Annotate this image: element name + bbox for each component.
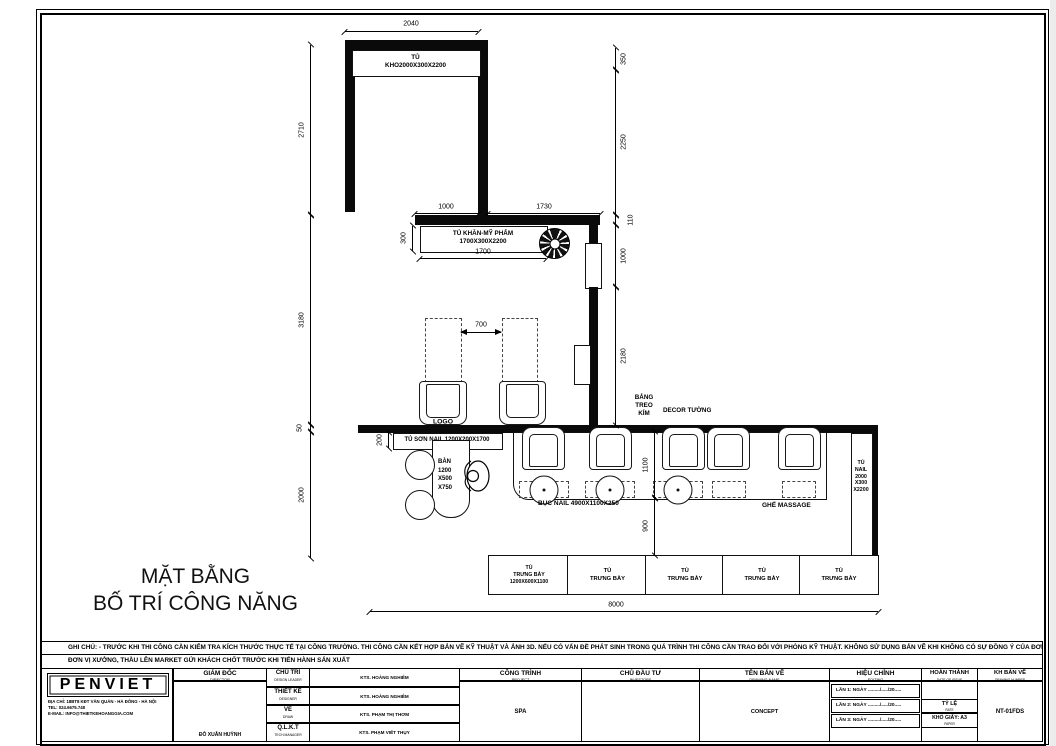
- dimension-line: [345, 31, 478, 32]
- dimension-line: [615, 48, 616, 70]
- display-cabinet: TỦTRƯNG BÀY1200X600X1100: [488, 555, 570, 595]
- role-vi: THIẾT KẾ: [267, 688, 309, 697]
- drawing-name-header: TÊN BẢN VẼ DRAWING NAME: [699, 668, 830, 681]
- investor-header: CHỦ ĐẦU TƯ INVESTORS: [581, 668, 700, 681]
- towel-cosmetic-cabinet-label: TỦ KHĂN-MỸ PHẨM1700X300X2200: [420, 230, 546, 245]
- dim-label: 2710: [299, 122, 306, 138]
- note-line-1: GHI CHÚ: - TRƯỚC KHI THI CÔNG CẦN KIỂM T…: [42, 642, 1042, 655]
- logo-wall-label: LOGO: [433, 419, 453, 426]
- role-name-cell: KTS. HOÀNG NGHIÊM: [309, 668, 460, 687]
- investor-title-vi: CHỦ ĐẦU TƯ: [582, 669, 699, 678]
- stool-seat: [664, 475, 693, 504]
- role-name-cell: KTS. HOÀNG NGHIÊM: [309, 687, 460, 705]
- wall-mid-horizontal: [415, 215, 600, 225]
- client-stool: [405, 450, 435, 480]
- dim-label: 50: [297, 424, 304, 432]
- role-name: KTS. HOÀNG NGHIÊM: [310, 694, 459, 699]
- director-header: GIÁM ĐỐC DIRECTOR: [173, 668, 267, 681]
- pin-board-label: BẢNGTREOKÍM: [629, 394, 659, 418]
- email-line: E-MAIL: INFO@THIETKEHOANGGIA.COM: [48, 711, 170, 717]
- styling-station: [502, 318, 538, 383]
- nail-cabinet-label: TỦNAIL 2000X300 X2200: [849, 460, 873, 494]
- dimension-line: [654, 432, 655, 498]
- dimension-line: [461, 332, 501, 333]
- editing-row-1: LẦN 1: NGÀY ........./...../20.....: [831, 684, 920, 698]
- nail-platform-label: BỤC NAIL 4900X1100X250: [538, 500, 619, 508]
- dim-label: 700: [475, 322, 487, 329]
- dim-label: 1100: [643, 457, 650, 472]
- role-en: DESIGN LEADER: [267, 678, 309, 683]
- company-cell: PENVIET ĐỊA CHỈ: 18BT8 KĐT VĂN QUÁN - HÀ…: [41, 668, 173, 742]
- dim-label: 1730: [536, 204, 552, 211]
- footrest: [712, 481, 746, 498]
- window-opening: [585, 243, 602, 289]
- drawing-sheet: TỦKHO2000X300X2200 TỦ KHĂN-MỸ PHẨM1700X3…: [0, 0, 1056, 746]
- drawing-name-cell: CONCEPT: [699, 681, 830, 742]
- scale-title-vi: TỶ LỆ: [922, 700, 977, 708]
- chair-seat: [596, 434, 625, 467]
- styling-chair: [499, 381, 546, 425]
- drawing-number-header: KH BẢN VẼ DRAWING NUMBER: [977, 668, 1043, 681]
- dim-label: 110: [628, 214, 635, 225]
- client-stool: [405, 490, 435, 520]
- chair-seat: [529, 434, 558, 467]
- chair-seat: [785, 434, 814, 467]
- dimension-line: [654, 498, 655, 555]
- director-cell: ĐỖ XUÂN HUỲNH: [173, 681, 267, 742]
- massage-chair: [589, 427, 632, 470]
- chair-seat: [669, 434, 698, 467]
- investor-cell: [581, 681, 700, 742]
- role-vi: VẼ: [267, 706, 309, 715]
- role-name-cell: KTS. PHẠM VIẾT THỤY: [309, 723, 460, 742]
- dimension-line: [412, 226, 413, 251]
- plan-title-line2: BỐ TRÍ CÔNG NĂNG: [63, 590, 328, 617]
- role-title-cell: THIẾT KẾ DESIGNER: [266, 687, 310, 705]
- dim-label: 1000: [438, 204, 454, 211]
- role-title-cell: VẼ DRAW: [266, 705, 310, 723]
- dimension-line: [615, 225, 616, 287]
- plan-title: MẶT BẰNG BỐ TRÍ CÔNG NĂNG: [63, 563, 328, 617]
- display-cabinet: TỦTRƯNG BÀY: [645, 555, 725, 595]
- scale-cell: TỶ LỆ RATE: [921, 699, 978, 713]
- role-name: KTS. HOÀNG NGHIÊM: [310, 675, 459, 680]
- dim-label: 1700: [475, 249, 491, 256]
- wall-decor-label: DECOR TƯỜNG: [663, 407, 711, 415]
- role-en: DRAW: [267, 715, 309, 720]
- massage-chair-label: GHẾ MASSAGE: [762, 502, 811, 510]
- massage-chair: [522, 427, 565, 470]
- dim-label: 2250: [621, 134, 628, 150]
- dimension-line: [310, 45, 311, 215]
- pedicure-stool: [653, 473, 703, 506]
- styling-station: [425, 318, 462, 383]
- nail-cabinet: [851, 433, 873, 562]
- display-cabinet: TỦTRƯNG BÀY: [722, 555, 802, 595]
- wall-storage-top: [345, 40, 488, 50]
- completion-title-vi: HOÀN THÀNH: [922, 669, 977, 678]
- dim-label: 3180: [299, 312, 306, 328]
- dimension-line: [615, 287, 616, 425]
- drawing-number-title-vi: KH BẢN VẼ: [978, 669, 1042, 678]
- editing-title-vi: HIỆU CHỈNH: [830, 669, 921, 678]
- role-name: KTS. PHẠM VIẾT THỤY: [310, 730, 459, 735]
- display-cabinet: TỦTRƯNG BÀY: [567, 555, 648, 595]
- editing-header: HIỆU CHỈNH EDITING: [829, 668, 922, 681]
- chair-seat: [506, 384, 539, 418]
- dimension-line: [310, 215, 311, 425]
- person-icon: [460, 440, 494, 512]
- dim-label: 900: [643, 520, 650, 532]
- notes-band: GHI CHÚ: - TRƯỚC KHI THI CÔNG CẦN KIỂM T…: [41, 641, 1043, 669]
- director-name: ĐỖ XUÂN HUỲNH: [174, 732, 266, 738]
- dim-label: 2000: [299, 487, 306, 503]
- role-title-cell: CHỦ TRÌ DESIGN LEADER: [266, 668, 310, 687]
- massage-chair: [707, 427, 750, 470]
- role-en: DESIGNER: [267, 697, 309, 702]
- drawing-number-cell: NT-01FDS: [977, 681, 1043, 742]
- dimension-line: [415, 213, 478, 214]
- dimension-line: [615, 70, 616, 215]
- display-cabinet: TỦTRƯNG BÀY: [799, 555, 879, 595]
- role-en: TECH.MANAGER: [267, 733, 309, 738]
- role-title-cell: Q.L.K.T TECH.MANAGER: [266, 723, 310, 742]
- dimension-line: [310, 432, 311, 558]
- fan-decor-icon: [539, 228, 570, 259]
- role-vi: Q.L.K.T: [267, 724, 309, 733]
- project-value: SPA: [515, 709, 527, 715]
- drawing-name-title-vi: TÊN BẢN VẼ: [700, 669, 829, 678]
- dim-label: 300: [401, 232, 408, 244]
- plan-title-line1: MẶT BẰNG: [63, 563, 328, 590]
- dimension-line: [488, 213, 600, 214]
- editing-row-2: LẦN 2: NGÀY ........./...../20.....: [831, 699, 920, 713]
- chair-seat: [714, 434, 743, 467]
- chair-seat: [426, 384, 460, 418]
- dim-label: 1000: [621, 248, 628, 264]
- paper-cell: KHỔ GIẤY: A3 PAPER: [921, 713, 978, 728]
- dimension-line: [420, 258, 546, 259]
- role-name: KTS. PHẠM THỊ THƠM: [310, 712, 459, 717]
- wall-niche: [574, 345, 591, 385]
- dim-label: 350: [621, 53, 628, 65]
- dim-label: 200: [377, 434, 384, 446]
- screen-gutter: [1050, 0, 1056, 746]
- dimension-line: [388, 433, 389, 448]
- editing-row-3: LẦN 3: NGÀY ........./...../20.....: [831, 714, 920, 728]
- paper-title-vi: KHỔ GIẤY: A3: [922, 714, 977, 722]
- project-header: CÔNG TRÌNH PROJECT: [459, 668, 582, 681]
- scale-title-en: RATE: [922, 708, 977, 713]
- role-vi: CHỦ TRÌ: [267, 669, 309, 678]
- footrest: [782, 481, 816, 498]
- massage-chair: [778, 427, 821, 470]
- dim-label: 8000: [608, 602, 624, 609]
- project-cell: SPA: [459, 681, 582, 742]
- project-title-vi: CÔNG TRÌNH: [460, 669, 581, 678]
- dim-label: 2040: [403, 21, 419, 28]
- wall-right-upper: [589, 225, 598, 245]
- completion-header: HOÀN THÀNH DATE OF ISSUE: [921, 668, 978, 681]
- paper-title-en: PAPER: [922, 722, 977, 727]
- drawing-number-value: NT-01FDS: [996, 709, 1024, 715]
- sheet-frame-inner: [40, 13, 1046, 746]
- director-title-vi: GIÁM ĐỐC: [174, 669, 266, 678]
- company-logo: PENVIET: [47, 673, 169, 697]
- dim-label: 2180: [621, 348, 628, 364]
- storage-cabinet-label: TỦKHO2000X300X2200: [352, 54, 479, 69]
- note-line-2: ĐƠN VỊ XƯỞNG, THẦU LÊN MARKET GỬI KHÁCH …: [42, 655, 1042, 667]
- massage-chair: [662, 427, 705, 470]
- role-name-cell: KTS. PHẠM THỊ THƠM: [309, 705, 460, 723]
- company-address: ĐỊA CHỈ: 18BT8 KĐT VĂN QUÁN - HÀ ĐÔNG - …: [48, 699, 170, 717]
- dimension-line: [370, 611, 878, 612]
- drawing-name-value: CONCEPT: [751, 709, 778, 715]
